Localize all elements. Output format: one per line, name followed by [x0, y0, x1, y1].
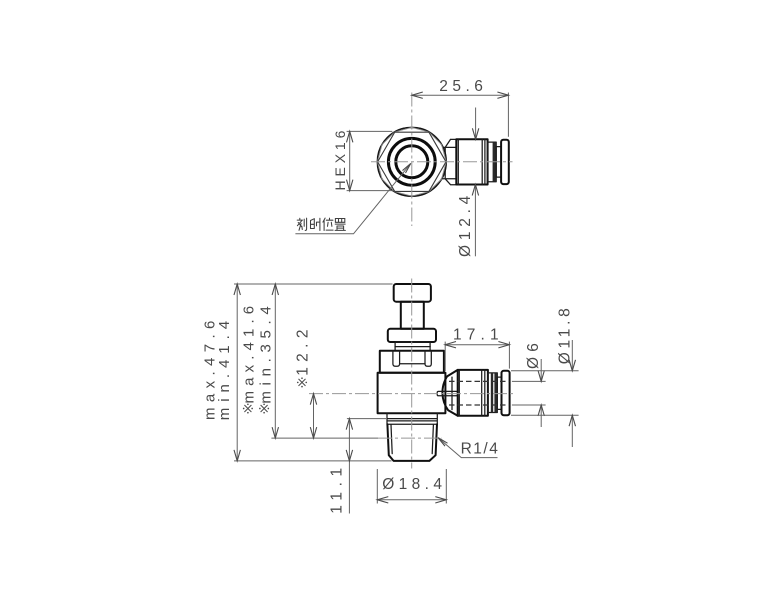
- svg-text:max.41.6: max.41.6: [240, 301, 257, 404]
- svg-text:12.2: 12.2: [295, 324, 312, 376]
- svg-text:Ø12.4: Ø12.4: [457, 191, 474, 257]
- svg-text:17.1: 17.1: [453, 327, 504, 344]
- svg-text:Ø11.8: Ø11.8: [556, 304, 573, 364]
- svg-text:R1/4: R1/4: [461, 441, 500, 458]
- svg-text:min.41.4: min.41.4: [216, 315, 233, 420]
- svg-text:Ø18.4: Ø18.4: [382, 476, 446, 493]
- svg-text:25.6: 25.6: [439, 78, 487, 95]
- svg-text:11.1: 11.1: [328, 462, 345, 514]
- svg-text:min.35.4: min.35.4: [257, 301, 274, 404]
- svg-text:Ø6: Ø6: [525, 338, 542, 369]
- svg-text:HEX16: HEX16: [332, 127, 348, 191]
